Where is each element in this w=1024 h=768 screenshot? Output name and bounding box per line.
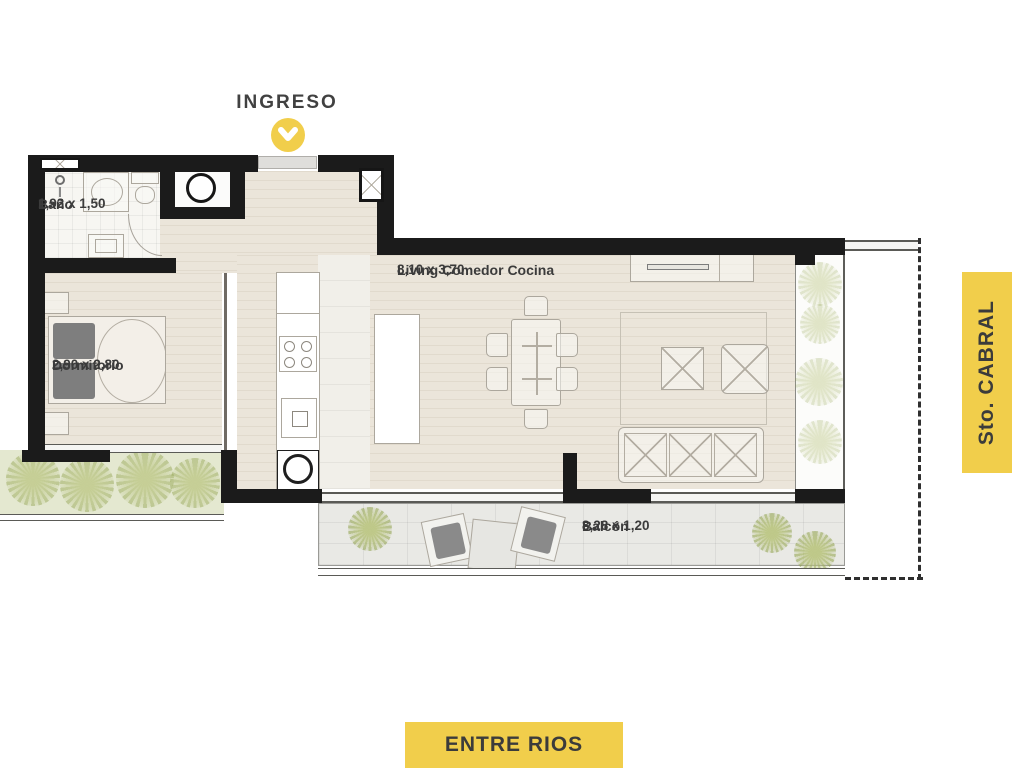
bidet (88, 234, 124, 258)
laundry-unit (277, 450, 319, 490)
plant-icon (798, 420, 842, 464)
structural-column (359, 168, 384, 202)
wall (22, 450, 110, 462)
plant-icon (170, 458, 220, 508)
entrance-label: INGRESO (217, 92, 357, 114)
dining-chair (524, 409, 548, 429)
sofa (618, 427, 764, 483)
partition-wall (224, 273, 227, 453)
kitchen-sink (281, 398, 317, 438)
room-dims: 8,10 x 3,70 (397, 262, 465, 278)
balcony-chair (421, 513, 474, 567)
dining-chair (556, 367, 578, 391)
stove (279, 336, 317, 372)
chevron-down-icon (277, 126, 299, 144)
plant-icon (795, 358, 843, 406)
bed-pillow (53, 323, 95, 359)
nightstand (43, 292, 69, 314)
wall (795, 489, 845, 503)
wall (563, 489, 651, 503)
washbasin-niche (175, 172, 230, 207)
plant-icon (800, 304, 840, 344)
plant-icon (794, 531, 836, 573)
room-dims: 1,92 x 1,50 (38, 196, 106, 212)
tv-console (630, 254, 754, 282)
street-name: Sto. CABRAL (975, 300, 999, 445)
garden-edge (0, 514, 224, 521)
dining-chair (524, 296, 548, 316)
lot-boundary-dashed (845, 577, 923, 580)
plant-icon (752, 513, 792, 553)
wall-vent (40, 158, 80, 170)
plant-icon (348, 507, 392, 551)
wall (385, 238, 845, 255)
street-badge-right: Sto. CABRAL (962, 272, 1012, 473)
room-dims: 2,90 x 2,80 (52, 357, 120, 373)
coffee-table (661, 347, 704, 390)
dining-table (511, 319, 561, 406)
dining-chair (556, 333, 578, 357)
plant-icon (798, 262, 842, 306)
kitchen-island (374, 314, 420, 444)
wall (28, 258, 176, 273)
street-badge-bottom: ENTRE RIOS (405, 722, 623, 768)
dining-chair (486, 367, 508, 391)
plant-icon (116, 450, 174, 508)
washbasin (186, 173, 216, 203)
room-dims: 8,28 x 1,20 (582, 518, 650, 534)
toilet (131, 172, 159, 184)
lot-boundary-dashed (918, 238, 921, 580)
toilet-bowl (135, 186, 155, 204)
entrance-marker (271, 118, 305, 152)
terrace-railing (845, 240, 918, 251)
entry-door-leaf (258, 156, 317, 169)
shower-head-icon (55, 175, 65, 185)
kitchen-floor (318, 255, 370, 489)
armchair (721, 344, 769, 394)
street-name: ENTRE RIOS (445, 733, 583, 757)
dining-chair (486, 333, 508, 357)
kitchen-cabinet-line (276, 313, 320, 314)
plant-icon (60, 458, 114, 512)
nightstand (43, 412, 69, 435)
wall (221, 489, 322, 503)
floor-plan: Baño 1,92 x 1,50 Dormitorio 2,90 x 2,80 … (0, 0, 1024, 768)
wall (230, 155, 245, 219)
balcony-edge (318, 568, 845, 576)
wall (795, 255, 815, 265)
